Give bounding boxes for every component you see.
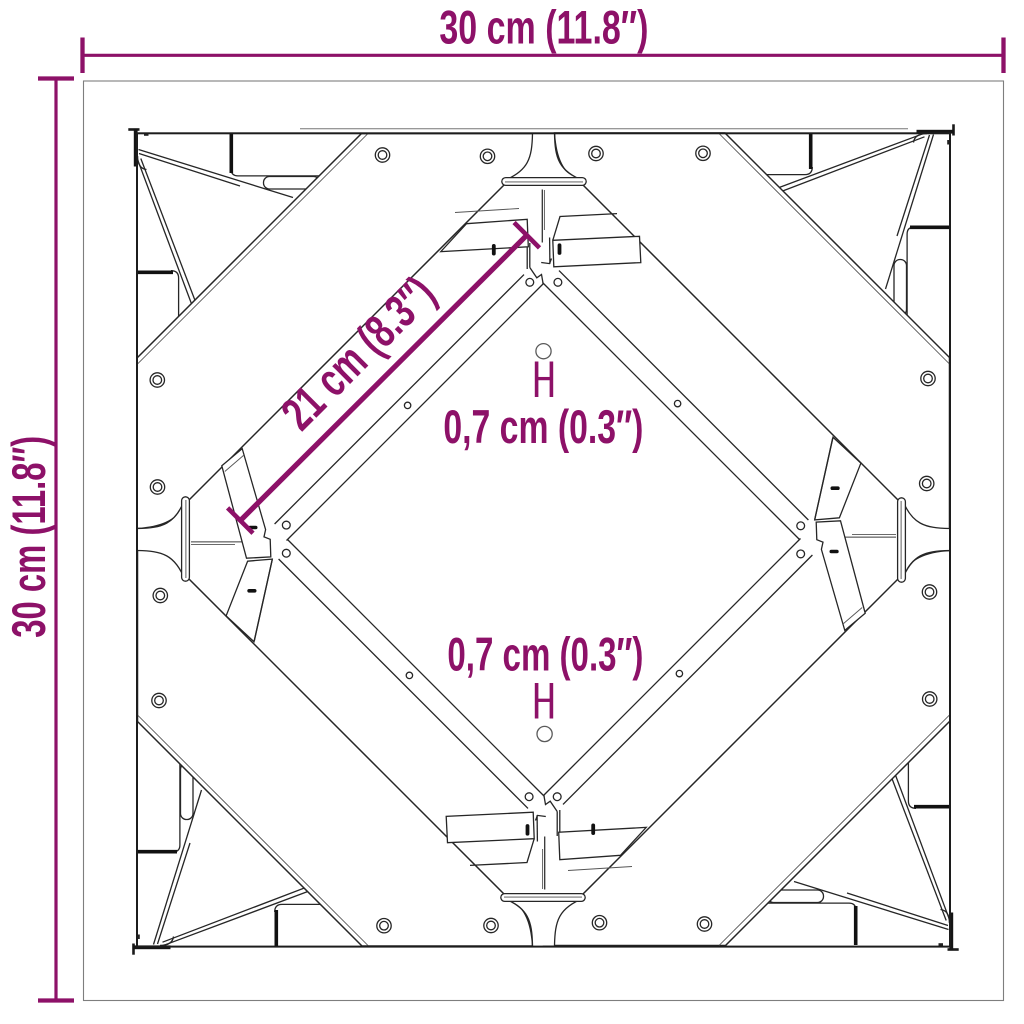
svg-text:30 cm (11.8″): 30 cm (11.8″) (3, 436, 56, 638)
svg-text:0,7 cm (0.3″): 0,7 cm (0.3″) (443, 401, 643, 454)
svg-text:30 cm (11.8″): 30 cm (11.8″) (439, 2, 648, 55)
svg-text:0,7 cm (0.3″): 0,7 cm (0.3″) (447, 628, 643, 681)
